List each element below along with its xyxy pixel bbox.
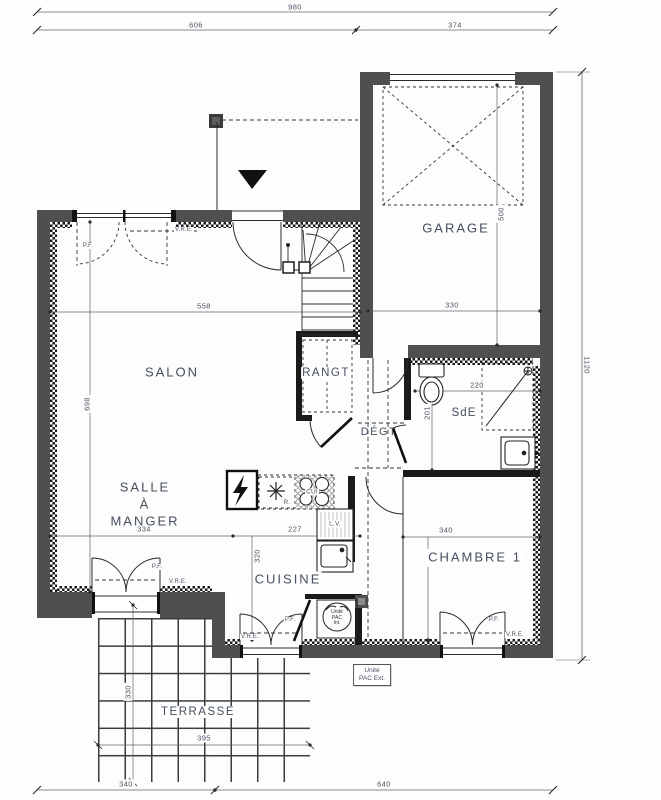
vre-label-bedroom-door: V.R.E. — [505, 632, 525, 638]
dim-right-height: 1120 — [583, 354, 592, 376]
dim-kitchen-depth: 320 — [253, 547, 262, 565]
pac-exterior-label: Unité PAC Ext. — [353, 664, 391, 686]
floor-plan: 980 606 374 1120 500 330 558 698 334 227… — [0, 0, 661, 800]
room-label-terrasse: TERRASSE — [158, 706, 238, 718]
dimension-lines — [37, 12, 590, 790]
room-label-dining-3: MANGER — [110, 514, 179, 529]
dim-top-left: 606 — [187, 21, 205, 30]
entrance-arrow-icon — [238, 170, 267, 189]
room-label-dining-1: SALLE — [120, 480, 170, 495]
bathroom-sink — [501, 437, 540, 469]
room-label-chambre: CHAMBRE 1 — [426, 550, 524, 565]
dim-sde-width: 220 — [468, 381, 486, 390]
dim-top-right: 374 — [446, 21, 464, 30]
cooktop-label: CUI — [305, 489, 319, 496]
technical-box-core — [358, 598, 365, 605]
vre-label-top-wall: V.R.E. — [174, 227, 194, 233]
dim-bottom-left: 340 — [117, 780, 135, 789]
dishwasher-label: L.V. — [328, 521, 342, 528]
dim-salon-width: 558 — [195, 302, 213, 311]
window-jambs — [72, 210, 505, 658]
pac-interior-label: Unité PAC Int. — [331, 610, 343, 627]
room-label-degt: DÉGT — [361, 426, 398, 438]
dim-kitchen-width: 227 — [286, 525, 304, 534]
electrical-panel — [227, 471, 257, 509]
dim-garage-width: 330 — [443, 301, 461, 310]
room-label-dining-2: À — [140, 497, 151, 512]
dim-terrasse-depth: 330 — [124, 683, 133, 701]
room-label-cuisine: CUISINE — [255, 572, 322, 587]
dim-chambre-width: 340 — [437, 526, 455, 535]
staircase — [283, 222, 353, 335]
pf-label-salon-window: P.F. — [82, 243, 94, 249]
dim-terrasse-width: 395 — [195, 734, 213, 743]
fridge-snowflake-icon — [267, 482, 285, 500]
pf-label-kitchen-door: P.F. — [284, 617, 296, 623]
fridge-label: R. — [283, 500, 291, 506]
window-lines — [72, 75, 515, 655]
plan-linework — [0, 0, 661, 800]
toilet — [419, 364, 444, 405]
shower — [486, 367, 532, 426]
vre-label-kitchen-door: V.R.E. — [240, 634, 260, 640]
room-label-garage: GARAGE — [422, 221, 490, 236]
pf-label-bedroom-door: P.F. — [488, 617, 500, 623]
dim-garage-depth: 500 — [497, 205, 506, 223]
room-label-rangt: RANGT — [301, 367, 351, 379]
kitchen-sink — [317, 541, 353, 572]
vre-label-dining-door: V.R.E. — [168, 579, 188, 585]
room-label-salon: SALON — [145, 365, 199, 380]
dim-bottom-right: 640 — [375, 780, 393, 789]
room-label-sde: SdE — [452, 407, 477, 419]
dimension-ticks — [33, 8, 586, 794]
dim-salon-depth: 698 — [83, 395, 92, 413]
dim-top-total: 980 — [286, 3, 304, 12]
pf-label-dining-door: P.F. — [151, 564, 163, 570]
dim-sde-depth: 201 — [423, 404, 432, 422]
